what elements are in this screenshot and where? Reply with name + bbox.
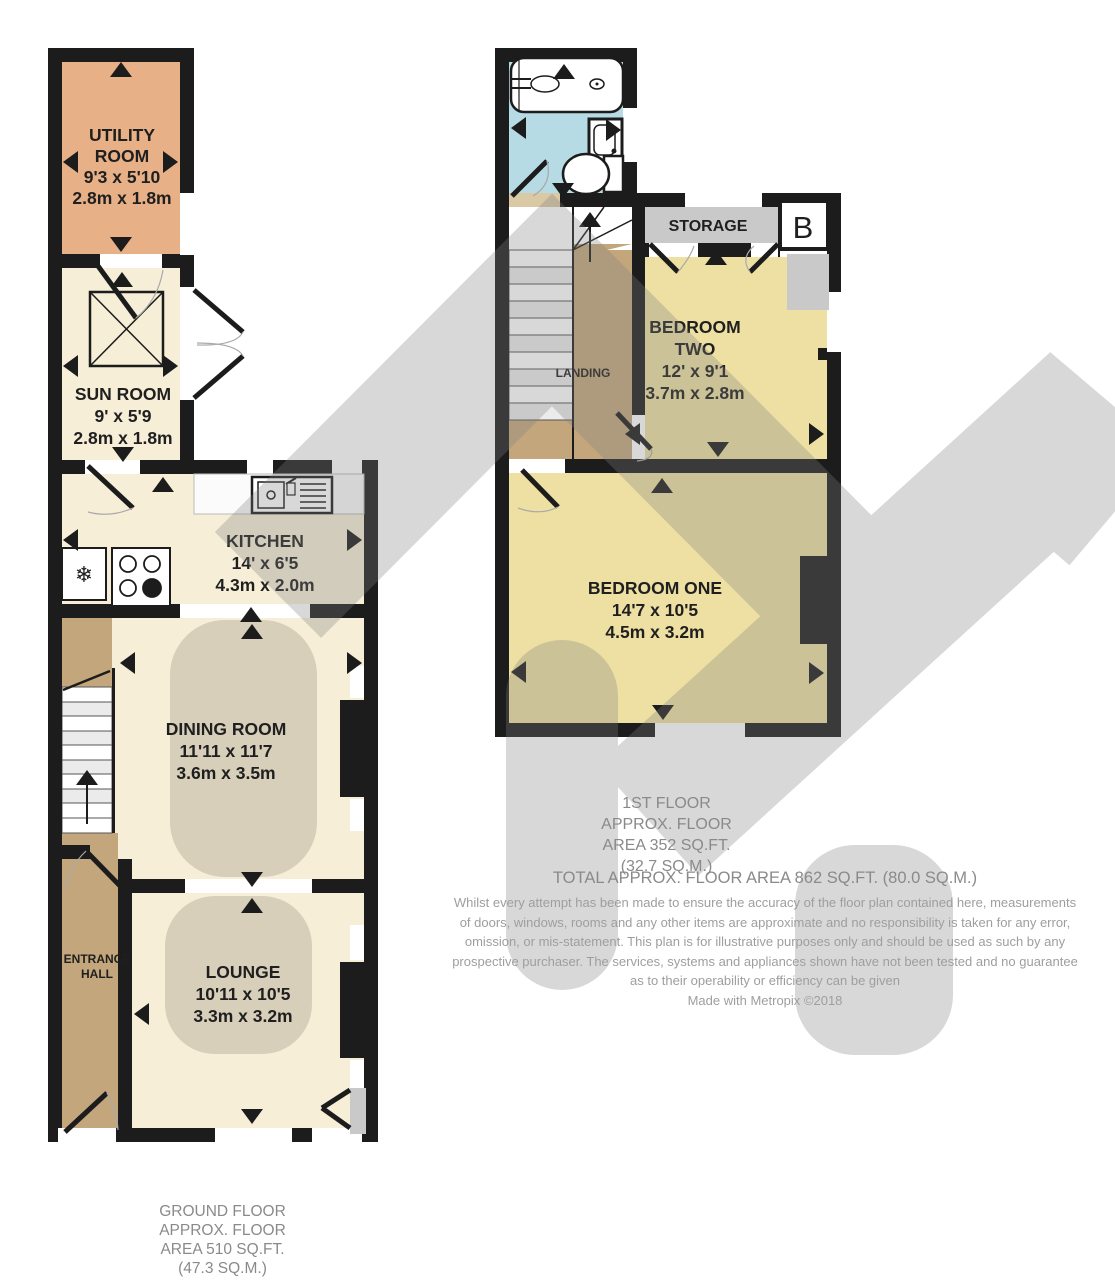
- utility-room-dims-metric: 2.8m x 1.8m: [72, 188, 171, 208]
- utility-room-label: ROOM: [95, 146, 149, 166]
- entrance-hall-floor: [62, 845, 118, 1128]
- caption-line: AREA 510 SQ.FT.: [120, 1240, 325, 1259]
- caption-line: 1ST FLOOR: [539, 793, 794, 814]
- disclaimer-line: Whilst every attempt has been made to en…: [412, 893, 1115, 913]
- ground-floor-stairs: [62, 668, 115, 833]
- snowflake-icon: ❄: [75, 563, 93, 588]
- boiler-label: B: [793, 210, 814, 245]
- lounge-dims-imperial: 10'11 x 10'5: [196, 984, 291, 1004]
- bedroom-two-window: [827, 292, 841, 352]
- first-floor-caption: 1ST FLOOR APPROX. FLOOR AREA 352 SQ.FT. …: [539, 793, 794, 877]
- disclaimer-line: of doors, windows, rooms and any other i…: [412, 913, 1115, 933]
- lounge-label: LOUNGE: [206, 962, 281, 982]
- bathtub-icon: [511, 58, 623, 112]
- lounge-dims-metric: 3.3m x 3.2m: [193, 1006, 292, 1026]
- disclaimer-line: omission, or mis-statement. This plan is…: [412, 932, 1115, 952]
- utility-room-dims-imperial: 9'3 x 5'10: [84, 167, 161, 187]
- dining-room-label: DINING ROOM: [166, 719, 287, 739]
- disclaimer-line: as to their operability or efficiency ca…: [412, 971, 1115, 991]
- bedroom-one-label: BEDROOM ONE: [588, 578, 722, 598]
- entrance-hall-label: HALL: [81, 967, 113, 981]
- caption-line: (47.3 SQ.M.): [120, 1259, 325, 1278]
- kitchen-window: [247, 460, 273, 474]
- utility-window: [180, 193, 194, 255]
- floor-plan-canvas: ❄: [0, 0, 1115, 1280]
- dining-alcove: [350, 666, 364, 698]
- caption-line: APPROX. FLOOR: [539, 814, 794, 835]
- disclaimer-block: Whilst every attempt has been made to en…: [412, 893, 1115, 1010]
- sun-room-label: SUN ROOM: [75, 384, 171, 404]
- sun-room-french-door: [194, 290, 243, 332]
- bedroom-one-dims-metric: 4.5m x 3.2m: [605, 622, 704, 642]
- sun-room-french-door: [194, 356, 243, 398]
- total-area-text: TOTAL APPROX. FLOOR AREA 862 SQ.FT. (80.…: [415, 868, 1115, 889]
- hob-icon: [112, 548, 170, 606]
- disclaimer-line: prospective purchaser. The services, sys…: [412, 952, 1115, 972]
- sun-room-dims-metric: 2.8m x 1.8m: [73, 428, 172, 448]
- caption-line: AREA 352 SQ.FT.: [539, 835, 794, 856]
- metropix-credit: Made with Metropix ©2018: [412, 991, 1115, 1011]
- french-door-panel: [350, 1088, 366, 1134]
- dining-room-dims-imperial: 11'11 x 11'7: [179, 741, 272, 761]
- bathroom-window: [623, 108, 637, 162]
- storage-label: STORAGE: [669, 218, 748, 235]
- caption-line: GROUND FLOOR: [120, 1202, 325, 1221]
- sun-room-dims-imperial: 9' x 5'9: [95, 406, 152, 426]
- gray-recess: [787, 254, 829, 310]
- entrance-hall-label: ENTRANCE: [64, 952, 131, 966]
- fridge-icon: ❄: [62, 548, 106, 600]
- dining-room-dims-metric: 3.6m x 3.5m: [176, 763, 275, 783]
- utility-room-label: UTILITY: [89, 125, 155, 145]
- toilet-icon: [563, 154, 623, 194]
- ground-floor-caption: GROUND FLOOR APPROX. FLOOR AREA 510 SQ.F…: [120, 1202, 325, 1278]
- total-area-caption: TOTAL APPROX. FLOOR AREA 862 SQ.FT. (80.…: [415, 868, 1115, 889]
- lounge-alcove: [350, 925, 364, 960]
- lounge-window: [215, 1128, 292, 1142]
- storage-window: [685, 193, 762, 207]
- dining-alcove: [350, 799, 364, 831]
- bedroom-one-dims-imperial: 14'7 x 10'5: [612, 600, 698, 620]
- caption-line: APPROX. FLOOR: [120, 1221, 325, 1240]
